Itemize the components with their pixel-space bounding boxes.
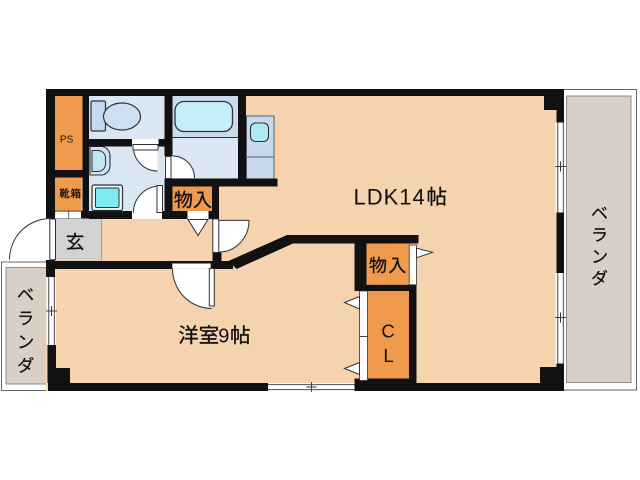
svg-text:LDK14: LDK14 [354,184,426,209]
svg-text:9: 9 [218,326,229,348]
svg-text:L: L [383,345,393,366]
svg-text:C: C [381,321,394,342]
svg-text:PS: PS [60,134,74,145]
